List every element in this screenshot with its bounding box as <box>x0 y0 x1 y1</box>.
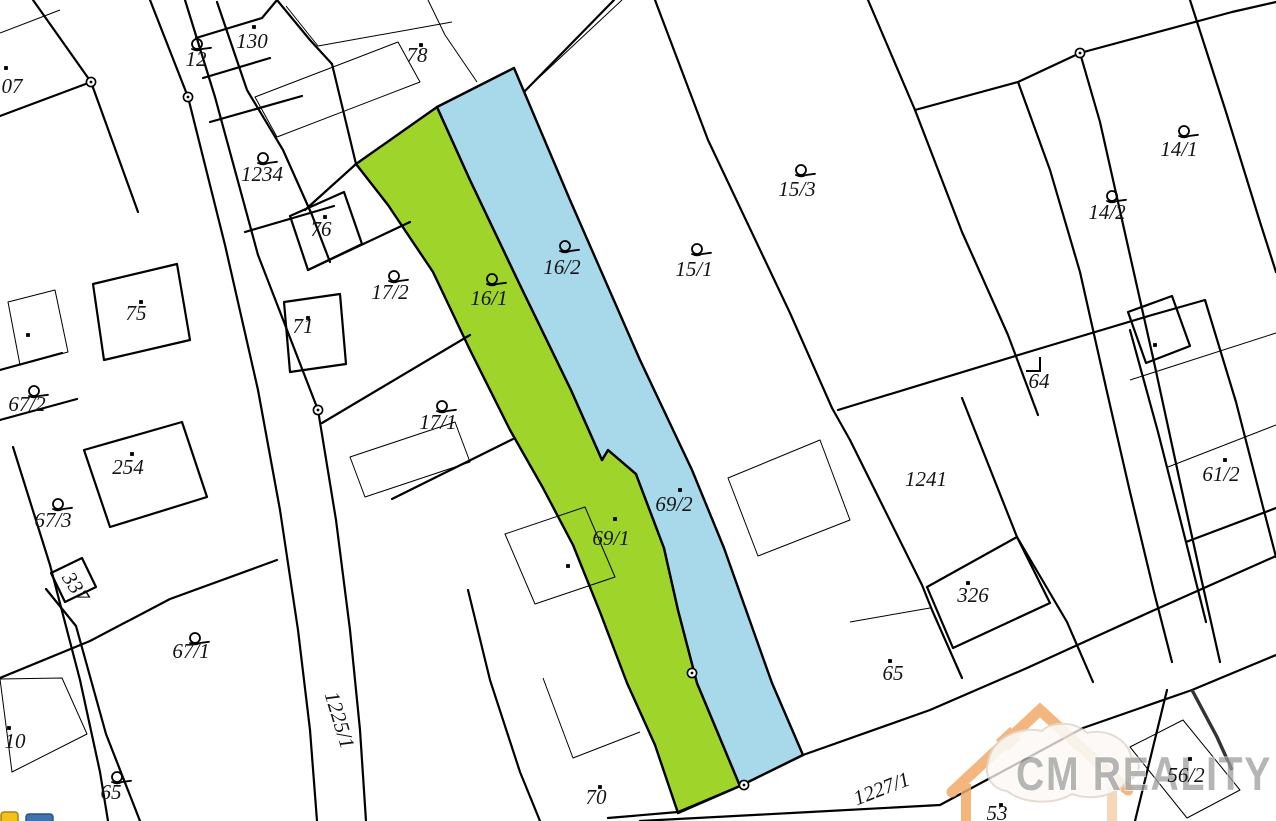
survey-point-icon <box>313 405 322 414</box>
parcel-label-76: 76 <box>311 217 333 241</box>
building-dot-icon <box>1188 757 1192 761</box>
survey-point-icon <box>739 780 748 789</box>
parcel-label-1234: 1234 <box>241 162 284 186</box>
parcel-label-14-2: 14/2 <box>1088 200 1126 224</box>
building-dot-icon <box>566 564 570 568</box>
cadastral-map-canvas: CM REALITY 07121307812347617/27116/116/2… <box>0 0 1276 821</box>
parcel-label-70: 70 <box>586 785 608 809</box>
survey-point-icon <box>183 92 192 101</box>
cadastral-map-view: CM REALITY 07121307812347617/27116/116/2… <box>0 0 1276 821</box>
building-dot-icon <box>613 517 617 521</box>
parcel-label-69-1: 69/1 <box>592 526 629 550</box>
parcel-label-75: 75 <box>126 301 147 325</box>
survey-point-icon <box>86 77 95 86</box>
parcel-label-71: 71 <box>293 314 314 338</box>
parcel-label-56-2: 56/2 <box>1167 763 1205 787</box>
parcel-label-14-1: 14/1 <box>1160 137 1197 161</box>
building-dot-icon <box>4 66 8 70</box>
parcel-label-16-1: 16/1 <box>470 286 507 310</box>
parcel-label-78: 78 <box>407 43 429 67</box>
survey-point-icon <box>1075 48 1084 57</box>
parcel-label-67-2: 67/2 <box>8 392 46 416</box>
parcel-label-1241: 1241 <box>905 467 947 491</box>
parcel-label-15-3: 15/3 <box>778 177 815 201</box>
parcel-label-17-2: 17/2 <box>371 280 409 304</box>
building-dot-icon <box>26 333 30 337</box>
parcel-label-12: 12 <box>186 47 208 71</box>
parcel-label-67-1: 67/1 <box>172 639 209 663</box>
parcel-label-67-3: 67/3 <box>34 508 71 532</box>
parcel-label-65: 65 <box>883 661 904 685</box>
yellow-badge-icon <box>1 812 18 821</box>
blue-badge-icon <box>26 814 53 821</box>
watermark-brand-text: CM REALITY <box>1016 747 1272 800</box>
parcel-label-326: 326 <box>956 583 989 607</box>
parcel-label-64: 64 <box>1029 369 1051 393</box>
parcel-label-17-1: 17/1 <box>419 410 456 434</box>
parcel-label-65: 65 <box>101 780 122 804</box>
parcel-label-10: 10 <box>5 729 27 753</box>
survey-point-icon <box>687 668 696 677</box>
building-dot-icon <box>1153 343 1157 347</box>
parcel-label-15-1: 15/1 <box>675 257 712 281</box>
parcel-label-254: 254 <box>112 455 144 479</box>
parcel-label-61-2: 61/2 <box>1202 462 1240 486</box>
parcel-label-53: 53 <box>987 801 1008 821</box>
parcel-label-69-2: 69/2 <box>655 492 693 516</box>
parcel-label-16-2: 16/2 <box>543 255 581 279</box>
parcel-label-130: 130 <box>236 29 268 53</box>
parcel-label-07: 07 <box>2 74 25 98</box>
